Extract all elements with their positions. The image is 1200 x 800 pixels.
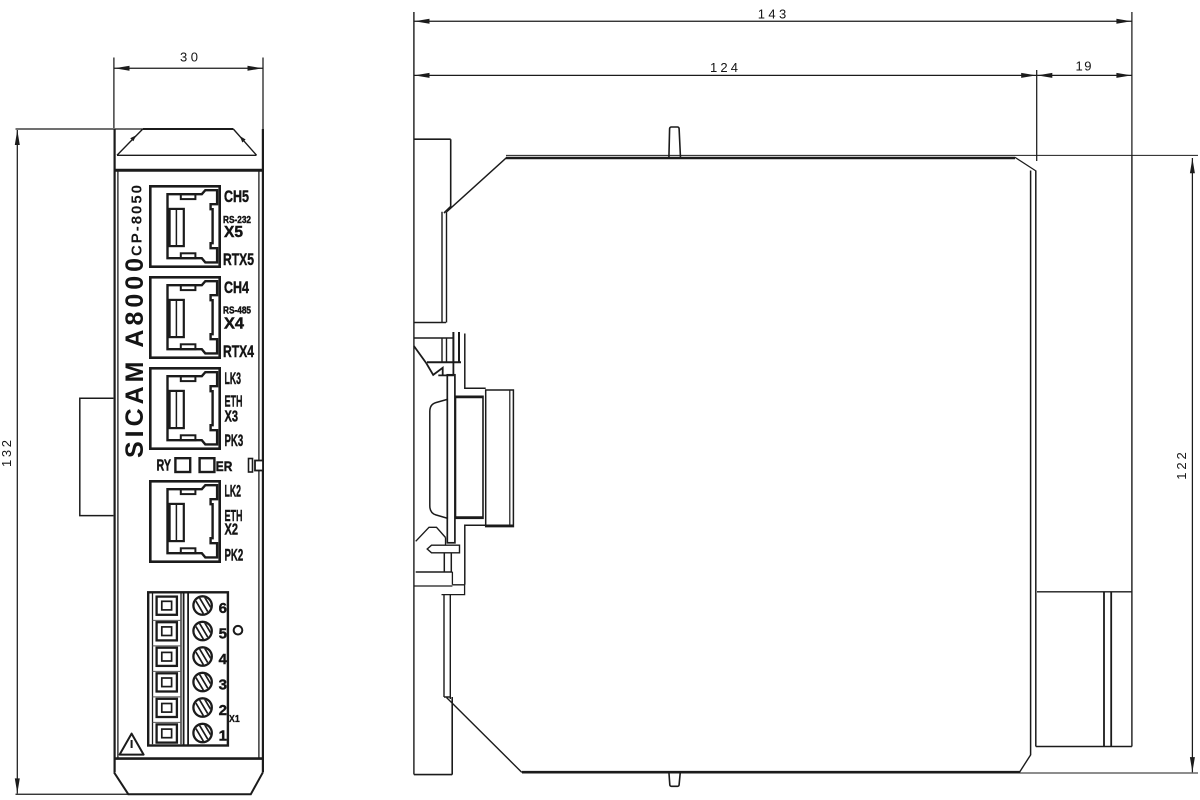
svg-text:ER: ER bbox=[216, 458, 233, 474]
svg-text:3: 3 bbox=[219, 676, 227, 693]
svg-text:LK2: LK2 bbox=[225, 482, 242, 501]
svg-text:122: 122 bbox=[1174, 452, 1189, 480]
svg-text:2: 2 bbox=[219, 702, 227, 719]
svg-text:143: 143 bbox=[758, 7, 787, 22]
svg-text:RY: RY bbox=[157, 458, 172, 475]
svg-text:132: 132 bbox=[0, 440, 14, 467]
svg-text:CP-8050: CP-8050 bbox=[129, 185, 146, 256]
svg-text:PK3: PK3 bbox=[225, 431, 244, 450]
svg-text:30: 30 bbox=[180, 50, 198, 65]
svg-text:X3: X3 bbox=[225, 409, 239, 426]
svg-text:X5: X5 bbox=[224, 224, 243, 241]
svg-text:CH5: CH5 bbox=[224, 187, 249, 206]
svg-text:SICAM A8000: SICAM A8000 bbox=[121, 258, 149, 458]
svg-text:X1: X1 bbox=[229, 713, 240, 725]
svg-text:LK3: LK3 bbox=[225, 369, 242, 388]
svg-text:19: 19 bbox=[1076, 59, 1092, 74]
svg-text:RTX4: RTX4 bbox=[223, 342, 254, 361]
svg-text:1: 1 bbox=[219, 727, 227, 744]
svg-text:CH4: CH4 bbox=[224, 278, 249, 297]
svg-text:X4: X4 bbox=[224, 316, 244, 333]
svg-text:6: 6 bbox=[219, 600, 227, 617]
svg-text:124: 124 bbox=[710, 60, 738, 75]
svg-text:RTX5: RTX5 bbox=[223, 250, 254, 269]
svg-text:X2: X2 bbox=[225, 522, 239, 539]
svg-text:4: 4 bbox=[219, 651, 228, 668]
svg-text:PK2: PK2 bbox=[225, 546, 244, 565]
svg-text:5: 5 bbox=[219, 625, 227, 642]
